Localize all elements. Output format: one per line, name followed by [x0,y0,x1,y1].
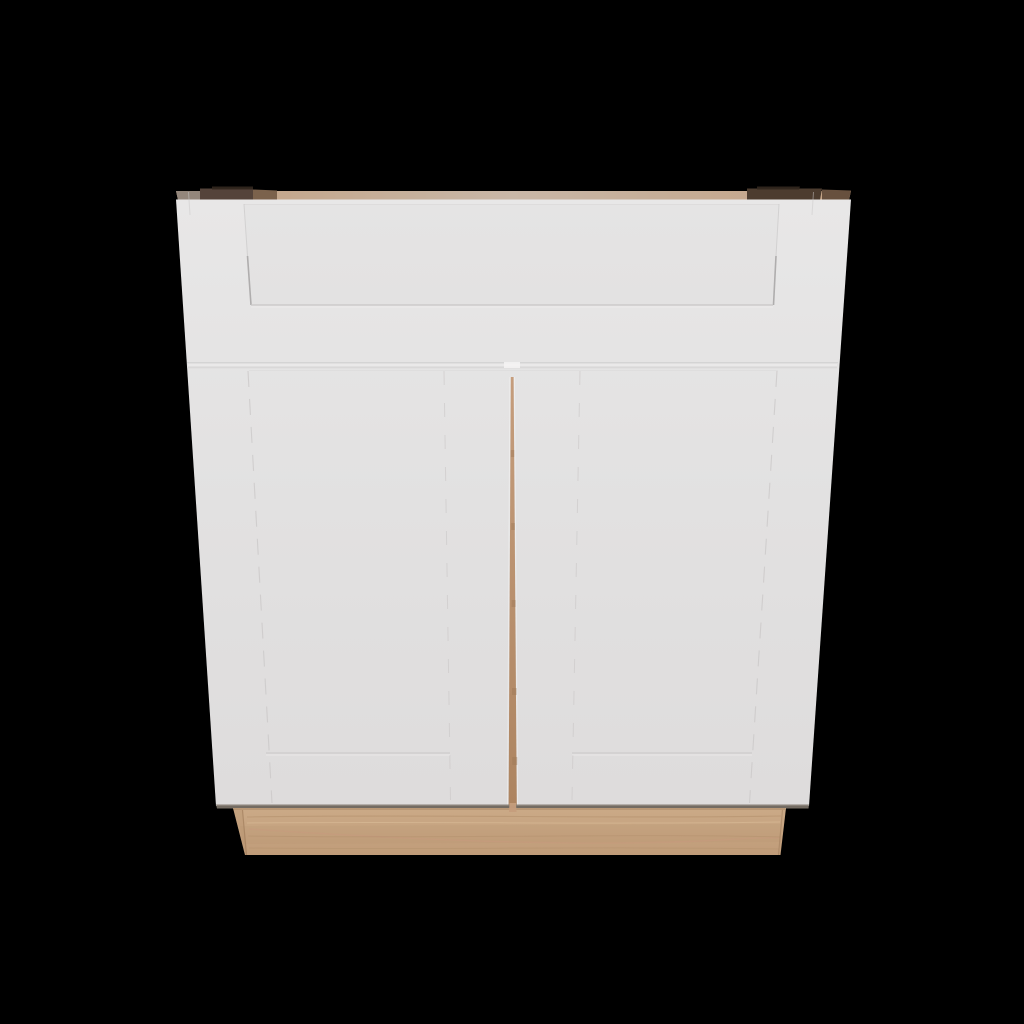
drawer-recessed-panel [245,205,778,305]
top-edge-mid-segment-left [253,190,277,201]
top-edge-lip-right [757,187,800,190]
top-edge-lip-left [212,187,253,190]
center-gap-wood-tick-5 [512,757,517,765]
center-gap-wood-tick-3 [512,600,516,607]
center-gap-toe-kick-notch [509,803,517,812]
top-edge-left-cap [176,191,200,200]
center-gap-wood-tick-4 [512,688,517,695]
center-gap-wood-tick-2 [511,523,515,530]
center-gap-wood-tick-1 [511,450,514,457]
top-edge-dark-segment-left [200,189,253,201]
top-edge-mid-segment-right [822,190,851,201]
gap-center-notch [504,362,520,368]
top-edge-dark-segment-right [747,189,822,201]
product-render-stage [0,0,1024,1024]
cabinet-render [0,0,1024,1024]
